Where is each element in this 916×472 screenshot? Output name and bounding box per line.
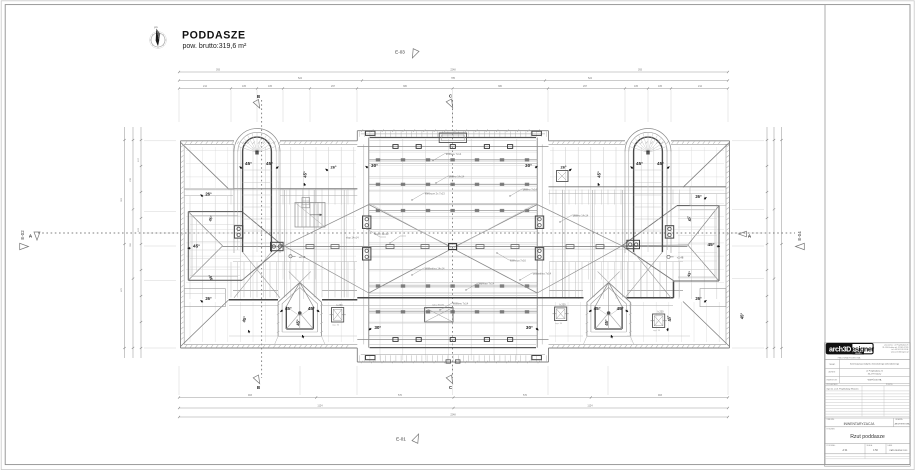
svg-text:45°: 45° <box>303 171 308 178</box>
svg-text:B: B <box>257 94 260 99</box>
svg-text:45°: 45° <box>193 244 200 249</box>
svg-text:STADIUM:: STADIUM: <box>827 418 835 421</box>
svg-text:45°: 45° <box>657 161 664 166</box>
svg-text:45°: 45° <box>617 306 624 311</box>
svg-text:26°: 26° <box>205 296 212 301</box>
svg-text:PODDASZE: PODDASZE <box>182 30 246 42</box>
svg-text:45°: 45° <box>266 161 273 166</box>
svg-text:BRANŻA:: BRANŻA: <box>896 418 904 421</box>
svg-text:arch3D: arch3D <box>829 345 851 354</box>
svg-text:903: 903 <box>248 394 253 397</box>
svg-text:45°: 45° <box>245 161 252 166</box>
svg-text:PAŹDZIERNIK 2011: PAŹDZIERNIK 2011 <box>890 449 909 452</box>
svg-text:płatew 7x14: płatew 7x14 <box>523 187 537 191</box>
svg-text:wymian 7x14: wymian 7x14 <box>479 281 495 285</box>
svg-text:słup 14x14: słup 14x14 <box>346 235 359 239</box>
svg-text:C: C <box>449 385 452 390</box>
svg-text:PRACOWNIA PROJEKTOWA: PRACOWNIA PROJEKTOWA <box>838 356 861 359</box>
svg-text:miecz 12x12: miecz 12x12 <box>374 232 389 236</box>
svg-text:k.230: k.230 <box>658 311 665 314</box>
svg-text:30°: 30° <box>525 163 532 168</box>
svg-text:45°: 45° <box>708 242 715 247</box>
svg-text:ADRES:: ADRES: <box>828 371 836 374</box>
svg-text:45°: 45° <box>594 306 601 311</box>
svg-text:297: 297 <box>331 85 336 88</box>
svg-text:26°: 26° <box>560 165 566 170</box>
svg-text:PROJEKTANT:: PROJEKTANT: <box>827 383 839 386</box>
svg-text:105: 105 <box>658 85 663 88</box>
svg-text:212: 212 <box>203 85 208 88</box>
svg-text:SKALA:: SKALA: <box>867 444 873 447</box>
svg-text:wys. 30: wys. 30 <box>653 330 661 332</box>
svg-text:C: C <box>449 94 452 99</box>
svg-text:2248: 2248 <box>450 69 456 72</box>
svg-text:45°: 45° <box>597 171 602 178</box>
svg-text:E-04: E-04 <box>797 231 802 241</box>
svg-text:45°: 45° <box>604 319 609 326</box>
svg-text:1124: 1124 <box>587 405 593 408</box>
svg-text:krokiew 7x14: krokiew 7x14 <box>453 301 469 305</box>
svg-text:kalenica 7x16: kalenica 7x16 <box>510 258 526 262</box>
svg-text:30°: 30° <box>374 325 381 330</box>
svg-text:TEMAT:: TEMAT: <box>829 363 836 366</box>
svg-text:26°: 26° <box>330 165 336 170</box>
svg-text:studio: studio <box>855 352 862 355</box>
svg-text:380: 380 <box>403 85 408 88</box>
svg-text:Inwentaryzacja budynku mieszka: Inwentaryzacja budynku mieszkalnego wiel… <box>850 363 900 366</box>
svg-text:105: 105 <box>634 85 639 88</box>
svg-text:ARCHITEKTURA: ARCHITEKTURA <box>895 423 910 426</box>
svg-text:mgr inż. arch. Przykładowy Wzo: mgr inż. arch. Przykładowy Wzorzec <box>827 389 859 391</box>
svg-text:INWENTARYZACJA: INWENTARYZACJA <box>844 422 876 426</box>
svg-text:www.arch3designer.pl: www.arch3designer.pl <box>891 352 909 354</box>
svg-text:E-01: E-01 <box>396 437 406 442</box>
svg-text:płatew 14x14: płatew 14x14 <box>573 213 589 217</box>
svg-text:30°: 30° <box>371 163 378 168</box>
svg-text:30-177 Kraków: 30-177 Kraków <box>868 373 882 375</box>
svg-text:1124: 1124 <box>317 405 323 408</box>
svg-text:E-03: E-03 <box>395 50 405 55</box>
svg-text:26°: 26° <box>695 296 702 301</box>
svg-text:wys. 30: wys. 30 <box>332 325 340 327</box>
svg-text:26°: 26° <box>205 191 212 196</box>
svg-text:570: 570 <box>523 394 528 397</box>
svg-text:524: 524 <box>588 77 593 80</box>
svg-text:k.230: k.230 <box>560 304 567 307</box>
svg-text:30°: 30° <box>526 325 533 330</box>
svg-text:RYSOWAŁ:: RYSOWAŁ: <box>827 444 836 447</box>
svg-text:785: 785 <box>451 77 456 80</box>
svg-text:ul. Przykładowa 21: ul. Przykładowa 21 <box>866 370 884 372</box>
svg-text:DATA:: DATA: <box>888 444 893 447</box>
svg-text:380: 380 <box>498 85 503 88</box>
svg-text:2248: 2248 <box>450 414 456 417</box>
svg-text:524: 524 <box>298 77 303 80</box>
svg-text:26°: 26° <box>695 194 702 199</box>
svg-text:45°: 45° <box>285 306 292 311</box>
svg-text:PODPIS:: PODPIS: <box>886 384 893 386</box>
svg-text:kleszcze 2x 7x13: kleszcze 2x 7x13 <box>425 191 445 195</box>
svg-text:wys. 30: wys. 30 <box>555 323 563 325</box>
svg-text:+2,48: +2,48 <box>299 255 306 259</box>
svg-text:Rzut poddasze: Rzut poddasze <box>850 434 885 440</box>
svg-text:+2,48: +2,48 <box>677 255 684 259</box>
svg-text:podwalina 7x14: podwalina 7x14 <box>533 271 552 275</box>
svg-text:wyłaz 86x86: wyłaz 86x86 <box>432 305 445 307</box>
svg-text:393: 393 <box>216 69 221 72</box>
svg-text:212: 212 <box>698 85 703 88</box>
svg-text:pow. brutto:319,6 m²: pow. brutto:319,6 m² <box>183 43 247 50</box>
svg-text:105: 105 <box>242 85 247 88</box>
svg-text:A.W.: A.W. <box>842 449 847 452</box>
svg-text:45°: 45° <box>636 161 643 166</box>
svg-text:E-02: E-02 <box>20 230 25 240</box>
svg-text:podwalina 14x14: podwalina 14x14 <box>425 266 445 270</box>
svg-text:570: 570 <box>398 394 403 397</box>
svg-text:297: 297 <box>583 85 588 88</box>
svg-text:krokiew 7x14: krokiew 7x14 <box>446 152 462 156</box>
svg-text:B: B <box>257 385 260 390</box>
svg-text:płatew 14x14: płatew 14x14 <box>449 174 465 178</box>
svg-text:105: 105 <box>268 85 273 88</box>
svg-text:k.230: k.230 <box>337 304 344 307</box>
svg-text:45°: 45° <box>308 306 315 311</box>
svg-text:903: 903 <box>658 394 663 397</box>
svg-text:45°: 45° <box>295 319 300 326</box>
svg-text:RYSUNEK:: RYSUNEK: <box>827 428 836 430</box>
svg-text:393: 393 <box>638 69 643 72</box>
svg-text:INWESTOR:: INWESTOR: <box>827 380 838 382</box>
svg-text:WSPÓLNOTA: WSPÓLNOTA <box>868 379 882 382</box>
svg-text:45°: 45° <box>740 313 745 320</box>
svg-text:1:50: 1:50 <box>873 449 878 452</box>
